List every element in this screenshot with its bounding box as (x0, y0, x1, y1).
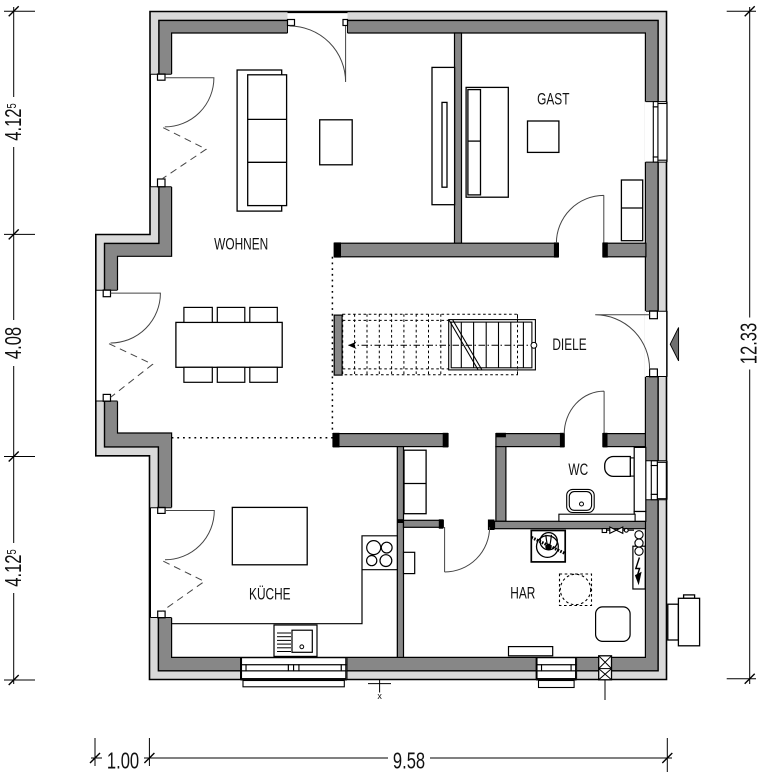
svg-text:4.08: 4.08 (1, 327, 26, 359)
svg-text:x: x (377, 691, 382, 701)
svg-text:4.125: 4.125 (1, 103, 26, 140)
svg-text:KÜCHE: KÜCHE (249, 583, 291, 604)
svg-text:WOHNEN: WOHNEN (214, 236, 268, 254)
svg-text:1.00: 1.00 (107, 749, 139, 772)
svg-text:4.125: 4.125 (1, 549, 26, 586)
svg-text:HAR: HAR (510, 585, 535, 603)
svg-text:12.33: 12.33 (737, 323, 761, 364)
svg-text:DIELE: DIELE (552, 336, 586, 354)
svg-text:9.58: 9.58 (393, 749, 425, 772)
svg-text:GAST: GAST (537, 91, 569, 109)
svg-text:WC: WC (568, 461, 588, 479)
